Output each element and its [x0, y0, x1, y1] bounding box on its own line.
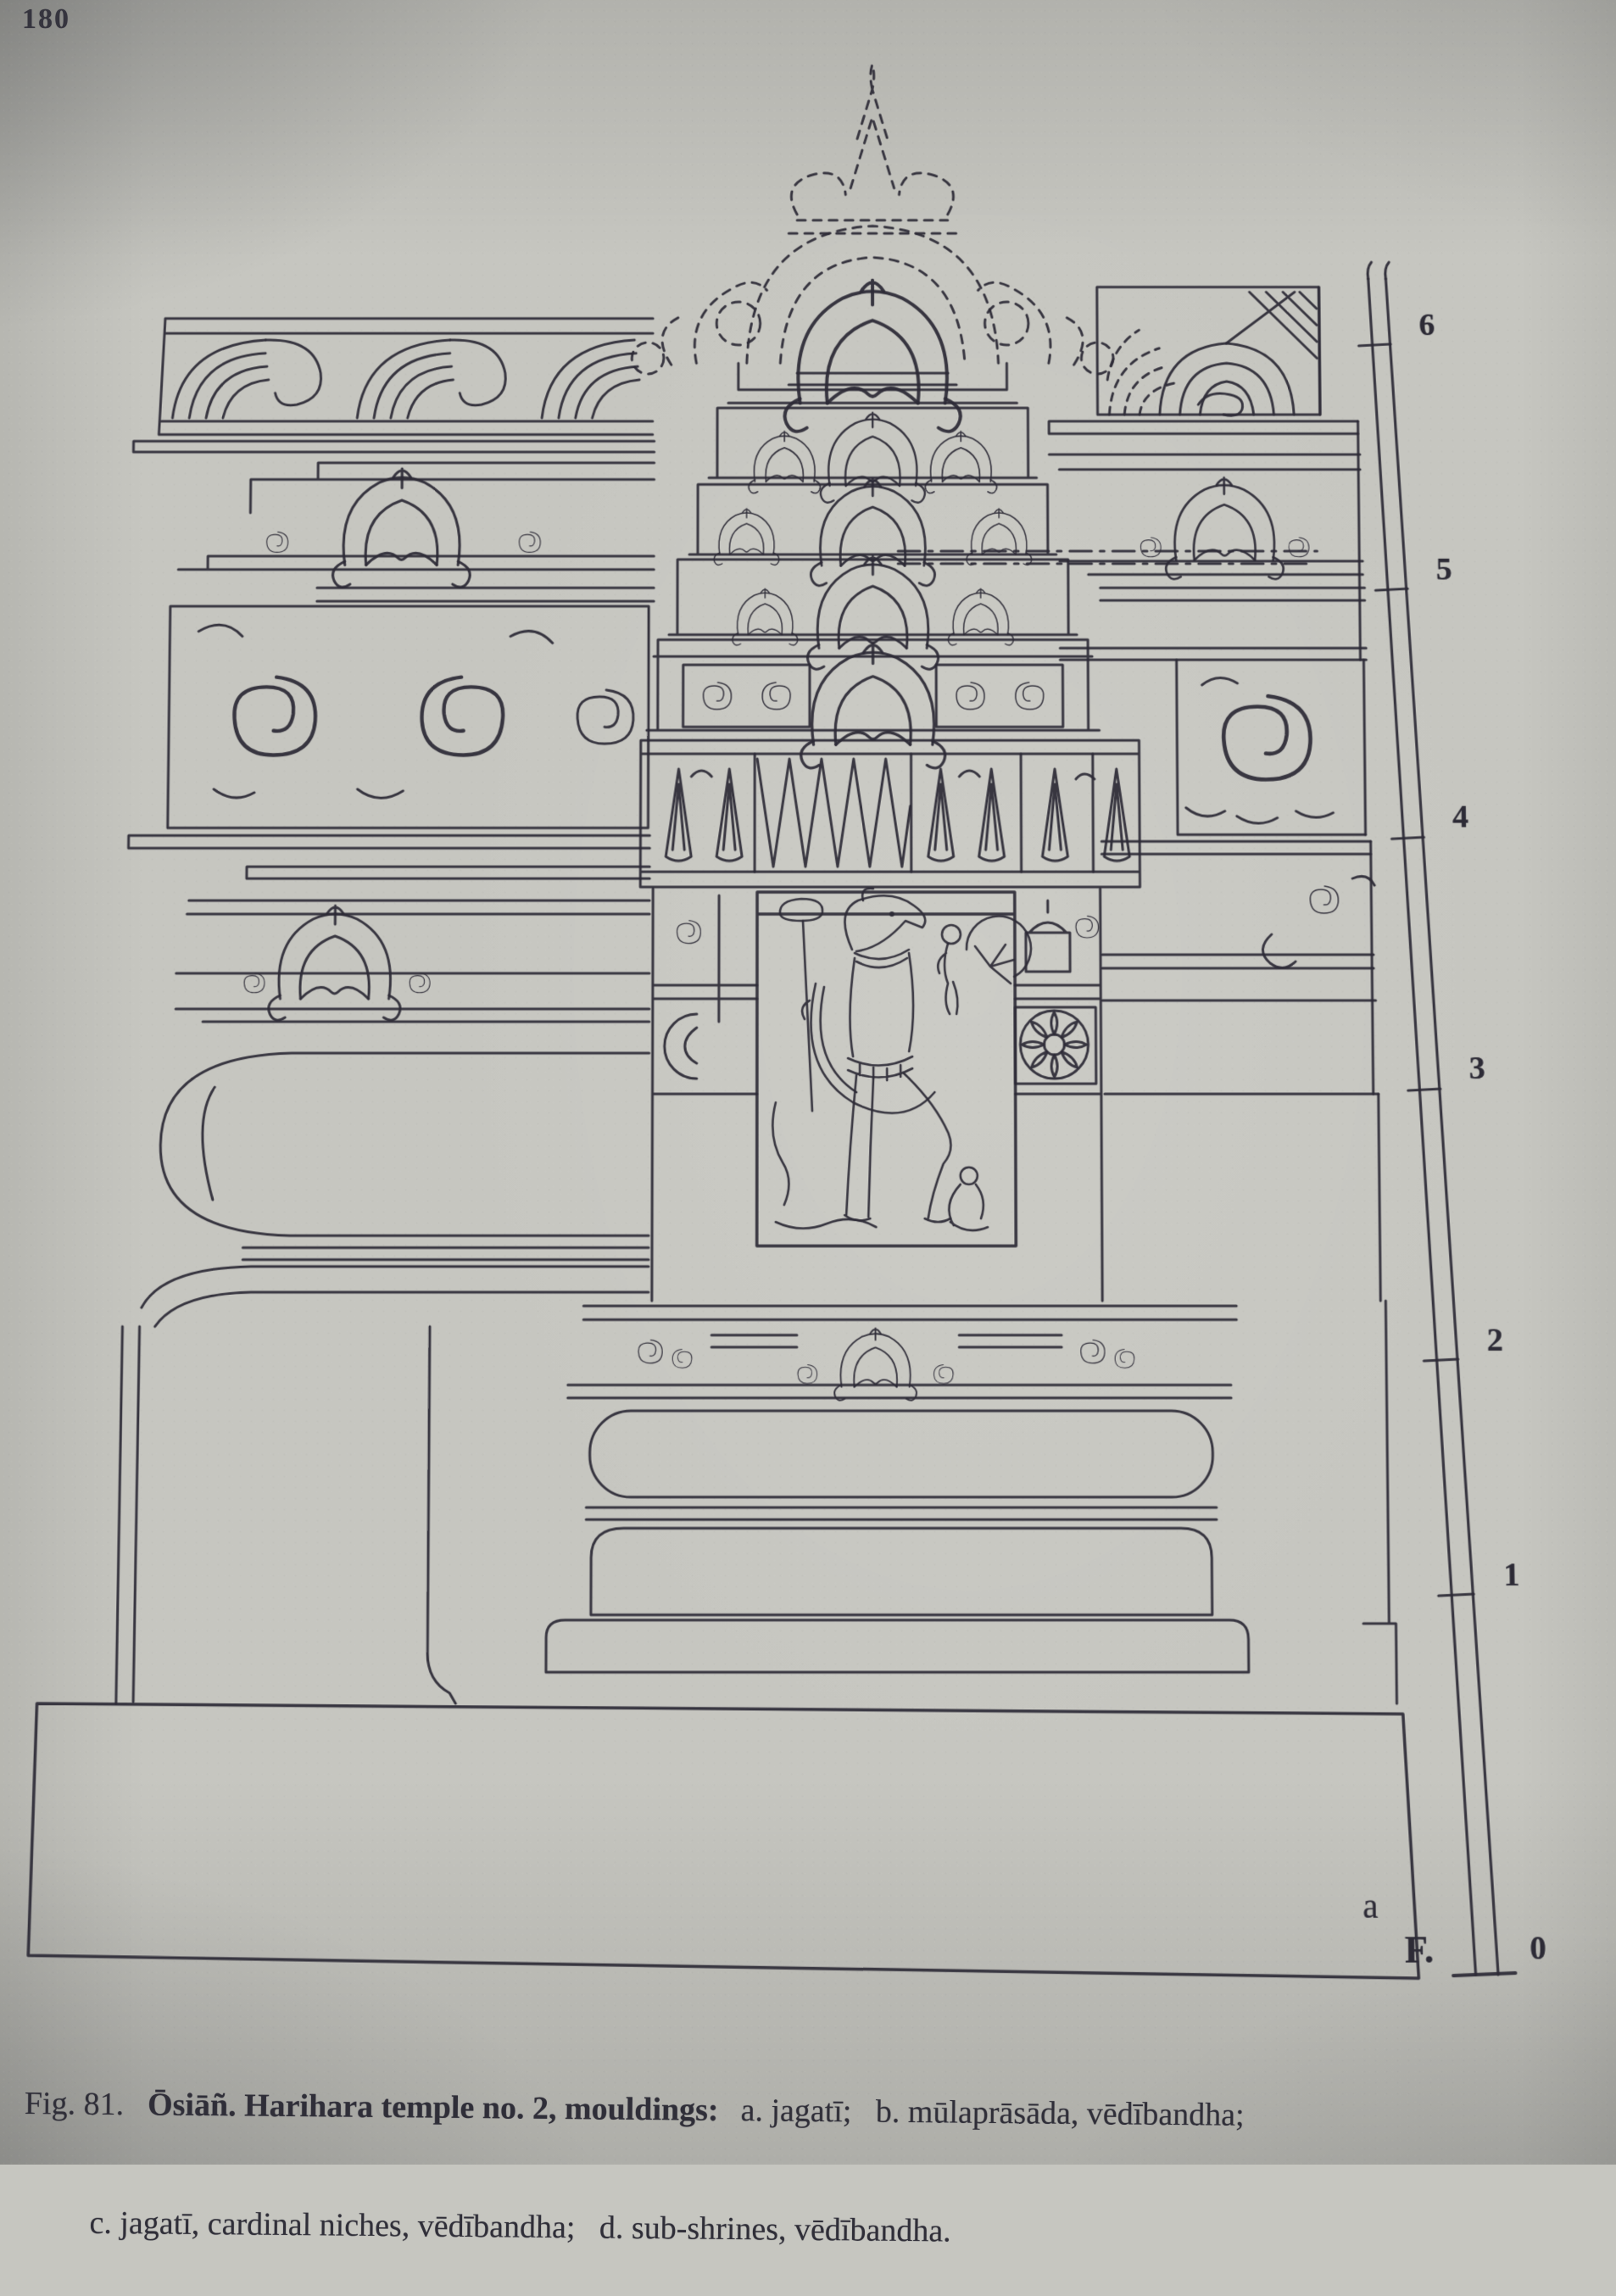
figure-caption: Fig. 81.Ōsiāñ. Harihara temple no. 2, mo… [23, 2006, 1604, 2296]
scale-tick-label-1: 1 [1503, 1556, 1520, 1594]
left-wall-mouldings [116, 319, 655, 1704]
niche-flanking-blocks [652, 889, 1102, 1301]
scale-tick-label-0: 0 [1530, 1929, 1546, 1968]
caption-line-2: c. jagatī, cardinal niches, vēdībandha; … [89, 2204, 1602, 2257]
caption-title: Ōsiāñ. Harihara temple no. 2, mouldings: [148, 2087, 719, 2127]
caption-fig-number: Fig. 81. [25, 2086, 125, 2122]
caption-line-1: Fig. 81.Ōsiāñ. Harihara temple no. 2, mo… [25, 2084, 1603, 2138]
central-tower-kuta-stack [629, 65, 1324, 1301]
scale-unit-label-feet: F. [1404, 1927, 1434, 1972]
part-label-a: a [1362, 1886, 1379, 1927]
caption-items-ab: a. jagatī; b. mūlaprāsāda, vēdībandha; [740, 2093, 1244, 2133]
cardinal-niche-relief [757, 889, 1033, 1246]
scale-tick-label-4: 4 [1452, 799, 1468, 836]
scale-tick-label-3: 3 [1468, 1050, 1485, 1087]
sub-shrine-vedibandha-base [546, 1306, 1249, 1672]
jagati-plinth [28, 1703, 1419, 1978]
dotted-crest [632, 65, 1113, 375]
cone-and-zigzag-band [640, 740, 1140, 887]
figure-81-area: 6 5 4 3 2 1 0 F. a [0, 18, 1616, 2192]
scale-tick-label-2: 2 [1486, 1322, 1503, 1360]
scale-tick-label-5: 5 [1435, 551, 1452, 588]
deity-figure [772, 889, 1032, 1230]
scale-ruler [1358, 262, 1516, 1976]
temple-mouldings-line-drawing [0, 18, 1616, 2192]
lotus-rosette [1022, 1012, 1086, 1077]
scale-tick-label-6: 6 [1418, 307, 1435, 343]
